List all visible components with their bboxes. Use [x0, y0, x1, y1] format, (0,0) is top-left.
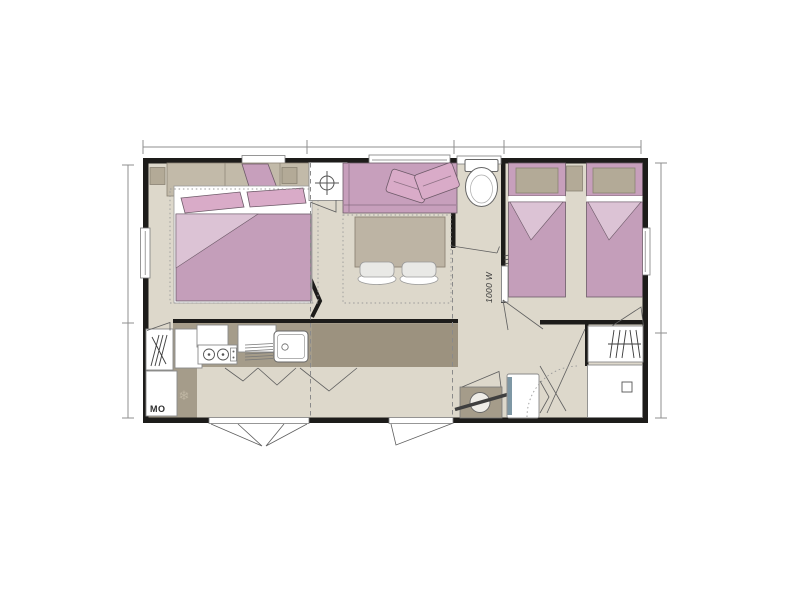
pillow-twin	[593, 168, 635, 193]
bedside-unit-left	[150, 168, 165, 185]
shower-drain	[622, 382, 632, 392]
shower	[588, 365, 643, 418]
microwave-label: MO	[150, 404, 166, 414]
sink-drain	[282, 344, 288, 350]
wall-heater	[502, 266, 509, 302]
entry-door-gap	[209, 418, 309, 424]
water-heater-unit	[309, 163, 347, 201]
heater-wattage-label: 1000 W	[484, 271, 494, 303]
entry-double-door-swing	[211, 424, 262, 446]
wall-kitchen	[173, 319, 458, 323]
fridge-snowflake-icon: ❄	[179, 388, 190, 403]
side-door-swing	[391, 424, 452, 446]
counter-cabinet	[197, 325, 228, 347]
worktop-return	[312, 324, 458, 367]
entry-double-door-swing	[266, 424, 307, 446]
wall-right	[643, 158, 649, 423]
counter-cabinet	[238, 325, 276, 352]
bedroom-double	[150, 163, 318, 303]
nightstand	[567, 166, 583, 191]
stool	[358, 262, 396, 285]
exterior-doors	[211, 424, 452, 447]
kitchen-sink	[274, 331, 308, 362]
wall-bathroom	[540, 320, 648, 325]
stool	[400, 262, 438, 285]
floorplan-svg: 1000 W MO ❄	[0, 0, 800, 600]
pillow-twin	[516, 168, 558, 193]
bedside-unit-right	[282, 168, 297, 184]
floorplan-canvas: 1000 W MO ❄	[0, 0, 800, 600]
dining-table	[355, 217, 445, 267]
side-door-gap	[389, 418, 453, 424]
hob-burners-icon	[204, 348, 237, 361]
boiler-strip	[508, 377, 513, 415]
